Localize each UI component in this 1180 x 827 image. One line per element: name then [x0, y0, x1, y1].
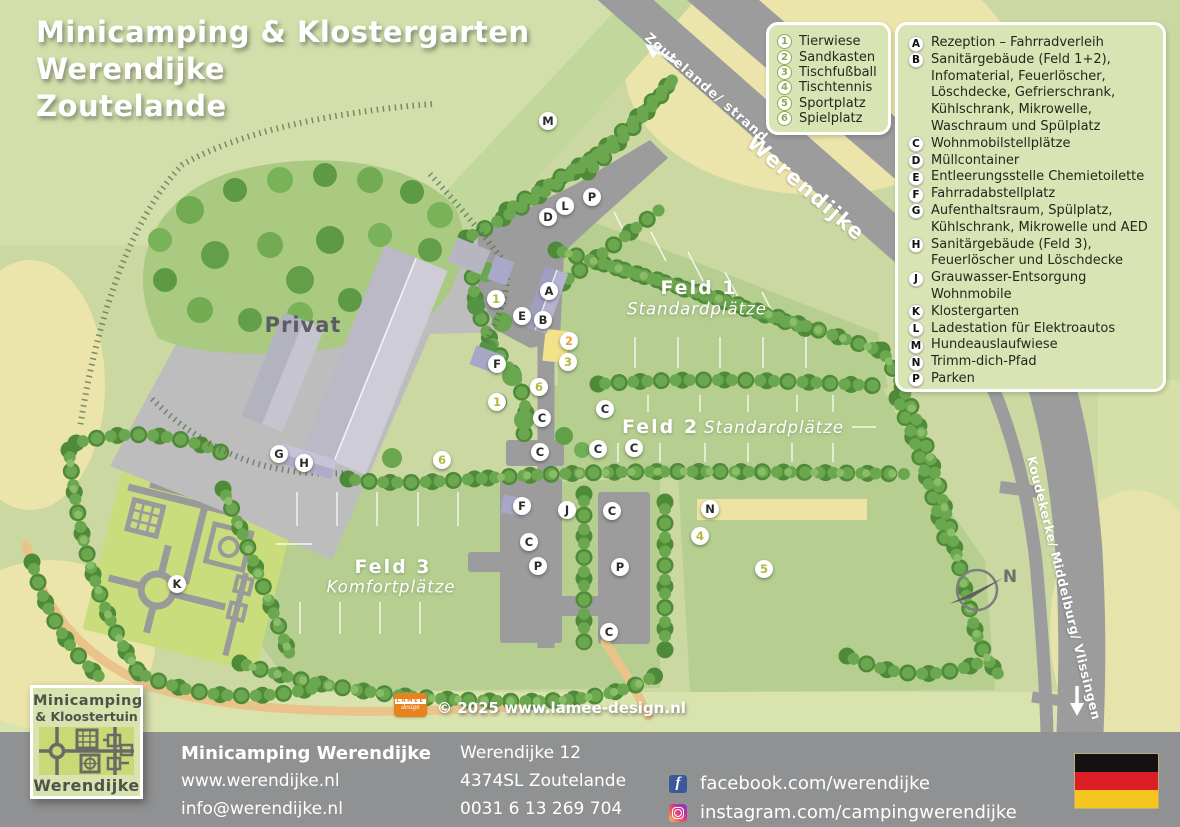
- footer-address-city: 4374SL Zoutelande: [460, 771, 626, 791]
- legend-item-e: EEntleerungsstelle Chemietoilette: [908, 169, 1153, 186]
- footer-phone: 0031 6 13 269 704: [460, 799, 622, 819]
- map-marker-1: 1: [487, 290, 505, 308]
- compass-north-label: N: [1003, 567, 1017, 587]
- map-marker-c: C: [603, 502, 621, 520]
- legend-item-a: ARezeption – Fahrradverleih: [908, 35, 1153, 52]
- map-marker-n: N: [701, 500, 719, 518]
- map-marker-c: C: [533, 409, 551, 427]
- company-logo-box: Minicamping & Kloostertuin Werendijke: [30, 685, 143, 799]
- map-marker-c: C: [520, 533, 538, 551]
- legend-number-item: 4Tischtennis: [777, 80, 880, 95]
- footer-company-name: Minicamping Werendijke: [181, 743, 431, 764]
- field1-label: Feld 1: [660, 277, 737, 299]
- map-marker-p: P: [529, 557, 547, 575]
- field2-sublabel: Standardplätze: [704, 418, 844, 437]
- field2-label-row: Feld 2 Standardplätze: [622, 416, 844, 438]
- footer-website-link[interactable]: www.werendijke.nl: [181, 771, 340, 791]
- instagram-link[interactable]: instagram.com/campingwerendijke: [700, 802, 1017, 823]
- footer-instagram-row: instagram.com/campingwerendijke: [669, 802, 1017, 823]
- letter-badge: N: [908, 355, 924, 371]
- trimm-path-strip: [697, 499, 867, 520]
- campsite-map-poster: Minicamping & Klostergarten Werendijke Z…: [0, 0, 1180, 827]
- legend-item-j: JGrauwasser-Entsorgung Wohnmobile: [908, 270, 1153, 304]
- number-badge: 2: [777, 50, 792, 65]
- title-line-1: Minicamping & Klostergarten: [36, 14, 530, 51]
- letter-badge: P: [908, 371, 924, 387]
- legend-item-g: GAufenthaltsraum, Spülplatz,Kühlschrank,…: [908, 203, 1153, 237]
- map-marker-a: A: [540, 282, 558, 300]
- footer-facebook-row: f facebook.com/werendijke: [669, 773, 930, 794]
- legend-item-d: DMüllcontainer: [908, 153, 1153, 170]
- map-marker-p: P: [611, 558, 629, 576]
- page-title: Minicamping & Klostergarten Werendijke Z…: [36, 14, 530, 125]
- footer-bar: Minicamping Werendijke www.werendijke.nl…: [0, 732, 1180, 827]
- legend-number-item: 3Tischfußball: [777, 65, 880, 80]
- map-marker-3: 3: [559, 353, 577, 371]
- field1-sublabel: Standardplätze: [627, 300, 767, 319]
- map-marker-g: G: [270, 445, 288, 463]
- letter-badge: L: [908, 321, 924, 337]
- letter-badge: C: [908, 136, 924, 152]
- logo-line-2: & Kloostertuin: [33, 709, 140, 724]
- map-marker-j: J: [558, 501, 576, 519]
- field2-label: Feld 2: [622, 416, 699, 438]
- legend-number-item: 1Tierwiese: [777, 34, 880, 49]
- map-marker-f: F: [488, 355, 506, 373]
- map-marker-d: D: [539, 208, 557, 226]
- letter-badge: G: [908, 203, 924, 219]
- legend-item-m: MHundeauslaufwiese: [908, 337, 1153, 354]
- lamee-design-logo: LAMEE design: [394, 693, 427, 717]
- legend-number-item: 5Sportplatz: [777, 96, 880, 111]
- letter-badge: E: [908, 170, 924, 186]
- legend-item-h: HSanitärgebäude (Feld 3),Feuerlöscher un…: [908, 237, 1153, 271]
- map-marker-b: B: [534, 311, 552, 329]
- map-marker-l: L: [556, 197, 574, 215]
- map-marker-p: P: [583, 188, 601, 206]
- map-marker-c: C: [596, 400, 614, 418]
- map-marker-6: 6: [433, 451, 451, 469]
- letter-badge: B: [908, 52, 924, 68]
- map-marker-c: C: [589, 440, 607, 458]
- footer-address-street: Werendijke 12: [460, 743, 581, 763]
- footer-email-link[interactable]: info@werendijke.nl: [181, 799, 343, 819]
- german-flag: [1074, 753, 1159, 809]
- map-marker-f: F: [513, 497, 531, 515]
- map-marker-c: C: [625, 439, 643, 457]
- letter-badge: J: [908, 271, 924, 287]
- number-badge: 6: [777, 111, 792, 126]
- instagram-icon: [669, 804, 687, 822]
- legend-item-b: BSanitärgebäude (Feld 1+2),Infomaterial,…: [908, 52, 1153, 136]
- number-badge: 3: [777, 65, 792, 80]
- map-marker-4: 4: [691, 527, 709, 545]
- legend-item-k: KKlostergarten: [908, 304, 1153, 321]
- facebook-icon: f: [669, 775, 687, 793]
- map-marker-5: 5: [755, 560, 773, 578]
- field3-sublabel: Komfortplätze: [326, 578, 455, 597]
- letter-badge: K: [908, 304, 924, 320]
- number-badge: 4: [777, 80, 792, 95]
- legend-number-item: 2Sandkasten: [777, 49, 880, 64]
- letter-badge: D: [908, 153, 924, 169]
- letter-badge: H: [908, 237, 924, 253]
- logo-map-graphic: [39, 727, 134, 775]
- letter-badge: F: [908, 187, 924, 203]
- map-marker-c: C: [531, 443, 549, 461]
- legend-number-item: 6Spielplatz: [777, 111, 880, 126]
- letter-badge: A: [908, 36, 924, 52]
- map-marker-k: K: [168, 575, 186, 593]
- title-line-2: Werendijke: [36, 51, 530, 88]
- map-marker-1: 1: [488, 393, 506, 411]
- field3-label: Feld 3: [354, 556, 431, 578]
- number-badge: 5: [777, 96, 792, 111]
- letter-badge: M: [908, 338, 924, 354]
- copyright-credit: © 2025 www.lamee-design.nl: [437, 699, 686, 717]
- facebook-link[interactable]: facebook.com/werendijke: [700, 773, 930, 794]
- map-marker-e: E: [513, 307, 531, 325]
- legend-item-l: LLadestation für Elektroautos: [908, 321, 1153, 338]
- number-badge: 1: [777, 34, 792, 49]
- map-marker-h: H: [295, 454, 313, 472]
- map-marker-m: M: [539, 112, 557, 130]
- map-marker-6: 6: [530, 378, 548, 396]
- title-line-3: Zoutelande: [36, 88, 530, 125]
- area-label-privat: Privat: [265, 313, 342, 337]
- legend-item-p: PParken: [908, 371, 1153, 388]
- legend-item-n: NTrimm-dich-Pfad: [908, 354, 1153, 371]
- map-marker-2: 2: [560, 332, 578, 350]
- logo-line-3: Werendijke: [33, 776, 140, 795]
- legend-item-c: CWohnmobilstellplätze: [908, 136, 1153, 153]
- legend-item-f: FFahrradabstellplatz: [908, 186, 1153, 203]
- legend-letters-box: ARezeption – Fahrradverleih BSanitärgebä…: [895, 22, 1166, 392]
- logo-line-1: Minicamping: [33, 693, 140, 709]
- legend-numbers-box: 1Tierwiese 2Sandkasten 3Tischfußball 4Ti…: [766, 22, 891, 135]
- map-marker-c: C: [600, 623, 618, 641]
